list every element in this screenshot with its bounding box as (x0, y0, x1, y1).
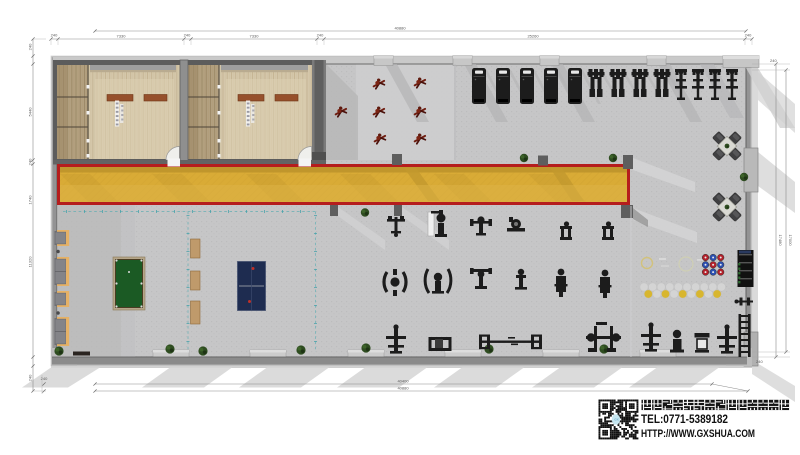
svg-text:240: 240 (317, 33, 324, 38)
svg-text:7330: 7330 (250, 34, 260, 39)
svg-text:240: 240 (184, 33, 191, 38)
svg-text:25260: 25260 (527, 34, 539, 39)
svg-text:240: 240 (756, 359, 763, 364)
svg-text:40880: 40880 (397, 386, 409, 391)
svg-text:1740: 1740 (28, 195, 33, 205)
svg-text:GX: GX (614, 418, 618, 422)
svg-text:7330: 7330 (117, 34, 127, 39)
svg-text:40400: 40400 (397, 379, 409, 384)
svg-text:17480: 17480 (778, 234, 783, 246)
svg-text:240: 240 (51, 33, 58, 38)
svg-text:240: 240 (745, 33, 752, 38)
svg-text:5440: 5440 (28, 107, 33, 117)
svg-text:11320: 11320 (28, 256, 33, 268)
svg-text:240: 240 (770, 58, 777, 63)
svg-text:HTTP://WWW.GXSHUA.COM: HTTP://WWW.GXSHUA.COM (641, 428, 755, 440)
svg-text:240: 240 (28, 374, 33, 381)
svg-text:240: 240 (28, 43, 33, 50)
svg-text:240: 240 (28, 158, 33, 165)
svg-text:240: 240 (41, 376, 48, 381)
svg-text:40880: 40880 (394, 26, 406, 31)
svg-text:TEL:0771-5389182: TEL:0771-5389182 (641, 414, 728, 426)
svg-text:17000: 17000 (788, 234, 793, 246)
